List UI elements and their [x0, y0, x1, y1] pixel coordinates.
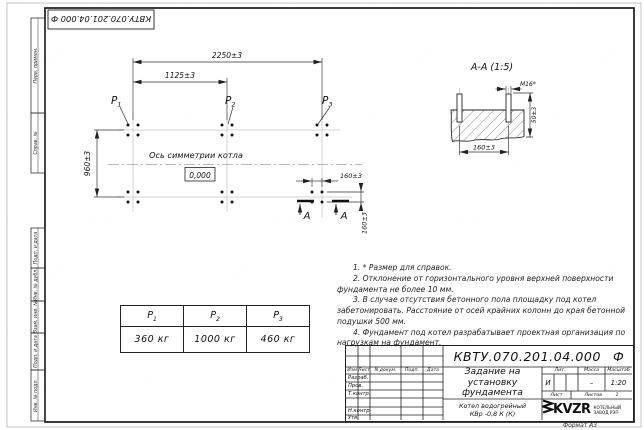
loads-table-value-row: 360 кг 1000 кг 460 кг [121, 327, 310, 353]
flipped-docnumber-text: КВТУ.070.201.04.000 Ф [51, 14, 151, 24]
load-leader-lines [120, 107, 330, 124]
scale-header: Масштаб [605, 367, 632, 374]
format-label: Формат А3 [540, 422, 620, 429]
note-line: 3. В случае отсутствия бетонного пола пл… [337, 295, 633, 327]
loads-table-header-row: P1 P2 P3 [121, 306, 310, 327]
company-description: КОТЕЛЬНЫЙ ЗАВОД РЭП [594, 405, 621, 415]
col-izm: Изм [346, 367, 358, 374]
company-cell: KVZR КОТЕЛЬНЫЙ ЗАВОД РЭП [542, 399, 632, 420]
margin-label: Инв. № подл. [33, 379, 39, 412]
anchor-bolt-groups [127, 124, 329, 204]
dim-half-width: 1125±3 [165, 71, 195, 80]
load-label-p1: P1 [111, 95, 121, 109]
level-value: 0,000 [189, 171, 211, 180]
dim-bolt-height: 50±3 [531, 107, 538, 124]
technical-notes: 1. * Размер для справок. 2. Отклонение о… [337, 263, 633, 349]
company-name: KVZR [553, 402, 591, 417]
section-view: А-А (1:5) М16* 50±3 160±3 [451, 62, 538, 155]
col-list: Лист [358, 367, 370, 374]
flipped-docnumber-stamp: КВТУ.070.201.04.000 Ф [48, 10, 154, 29]
product-name: Котел водогрейный КВр -0,8 К (К) [443, 399, 542, 420]
load-value: 460 кг [247, 327, 310, 353]
margin-label: Взам. инв. № [33, 301, 39, 334]
plan-dimension-lines [97, 62, 361, 211]
loads-table: P1 P2 P3 360 кг 1000 кг 460 кг [120, 305, 310, 353]
doc-number-text: КВТУ.070.201.04.000 [454, 349, 601, 364]
dim-bolt-spacing: 160±3 [473, 144, 495, 152]
row-prov: Пров. [346, 382, 372, 390]
margin-label: Подп. и дата [33, 232, 39, 265]
load-value: 360 кг [121, 327, 184, 353]
load-header: P2 [184, 306, 247, 327]
mass-value: – [578, 374, 605, 391]
margin-label: Перв. примен. [33, 47, 39, 83]
load-header: P3 [247, 306, 310, 327]
kvzr-logo-icon [542, 399, 554, 414]
lit-value: И [542, 374, 554, 391]
sheets-label: Листов [585, 393, 603, 398]
margin-label: Инв. № дубл. [33, 268, 39, 301]
row-razrab: Разраб. [346, 374, 372, 382]
sheets-count: 1 [616, 393, 619, 398]
dim-total-width: 2250±3 [212, 51, 242, 60]
drawing-sheet: ········································… [0, 0, 644, 430]
col-data: Дата [423, 367, 443, 374]
section-title: А-А (1:5) [470, 62, 513, 73]
row-utv: Утв. [346, 415, 372, 420]
row-tkontr: Т.контр. [346, 390, 372, 398]
note-line: 1. * Размер для справок. [337, 263, 633, 274]
bolt-callout: М16* [520, 81, 536, 88]
sheets-cell: Листов 1 [571, 391, 632, 399]
dim-depth: 960±3 [83, 151, 92, 177]
section-letter-right: А [340, 211, 348, 222]
title-block: КВТУ.070.201.04.000 Ф Изм Лист N докум. … [345, 345, 634, 422]
load-value: 1000 кг [184, 327, 247, 353]
load-label-p2: P2 [225, 95, 235, 109]
col-podp: Подп. [401, 367, 423, 374]
margin-label: Справ. № [33, 131, 39, 154]
mass-header: Масса [578, 367, 605, 374]
drawing-title: Задание на установку фундамента [443, 367, 542, 399]
load-header: P1 [121, 306, 184, 327]
doc-number-suffix: Ф [613, 349, 624, 364]
section-letter-left: А [303, 211, 311, 222]
col-ndocum: N докум. [370, 367, 401, 374]
dim-bolt-vertical: 160±3 [361, 212, 369, 234]
scale-value: 1:20 [605, 374, 632, 391]
lit-header: Лит. [542, 367, 578, 374]
title-block-doc-number: КВТУ.070.201.04.000 Ф [443, 346, 635, 367]
dim-bolt-horizontal: 160±3 [340, 172, 362, 180]
plan-view: 2250±3 1125±3 960±3 P1 P2 P3 Ось симметр… [83, 51, 369, 234]
margin-label: Подп. и дата [33, 335, 39, 368]
load-label-p3: P3 [322, 95, 332, 109]
axis-label: Ось симметрии котла [149, 150, 243, 160]
sheet-label: Лист [542, 391, 571, 399]
note-line: 2. Отклонение от горизонтального уровня … [337, 274, 633, 296]
